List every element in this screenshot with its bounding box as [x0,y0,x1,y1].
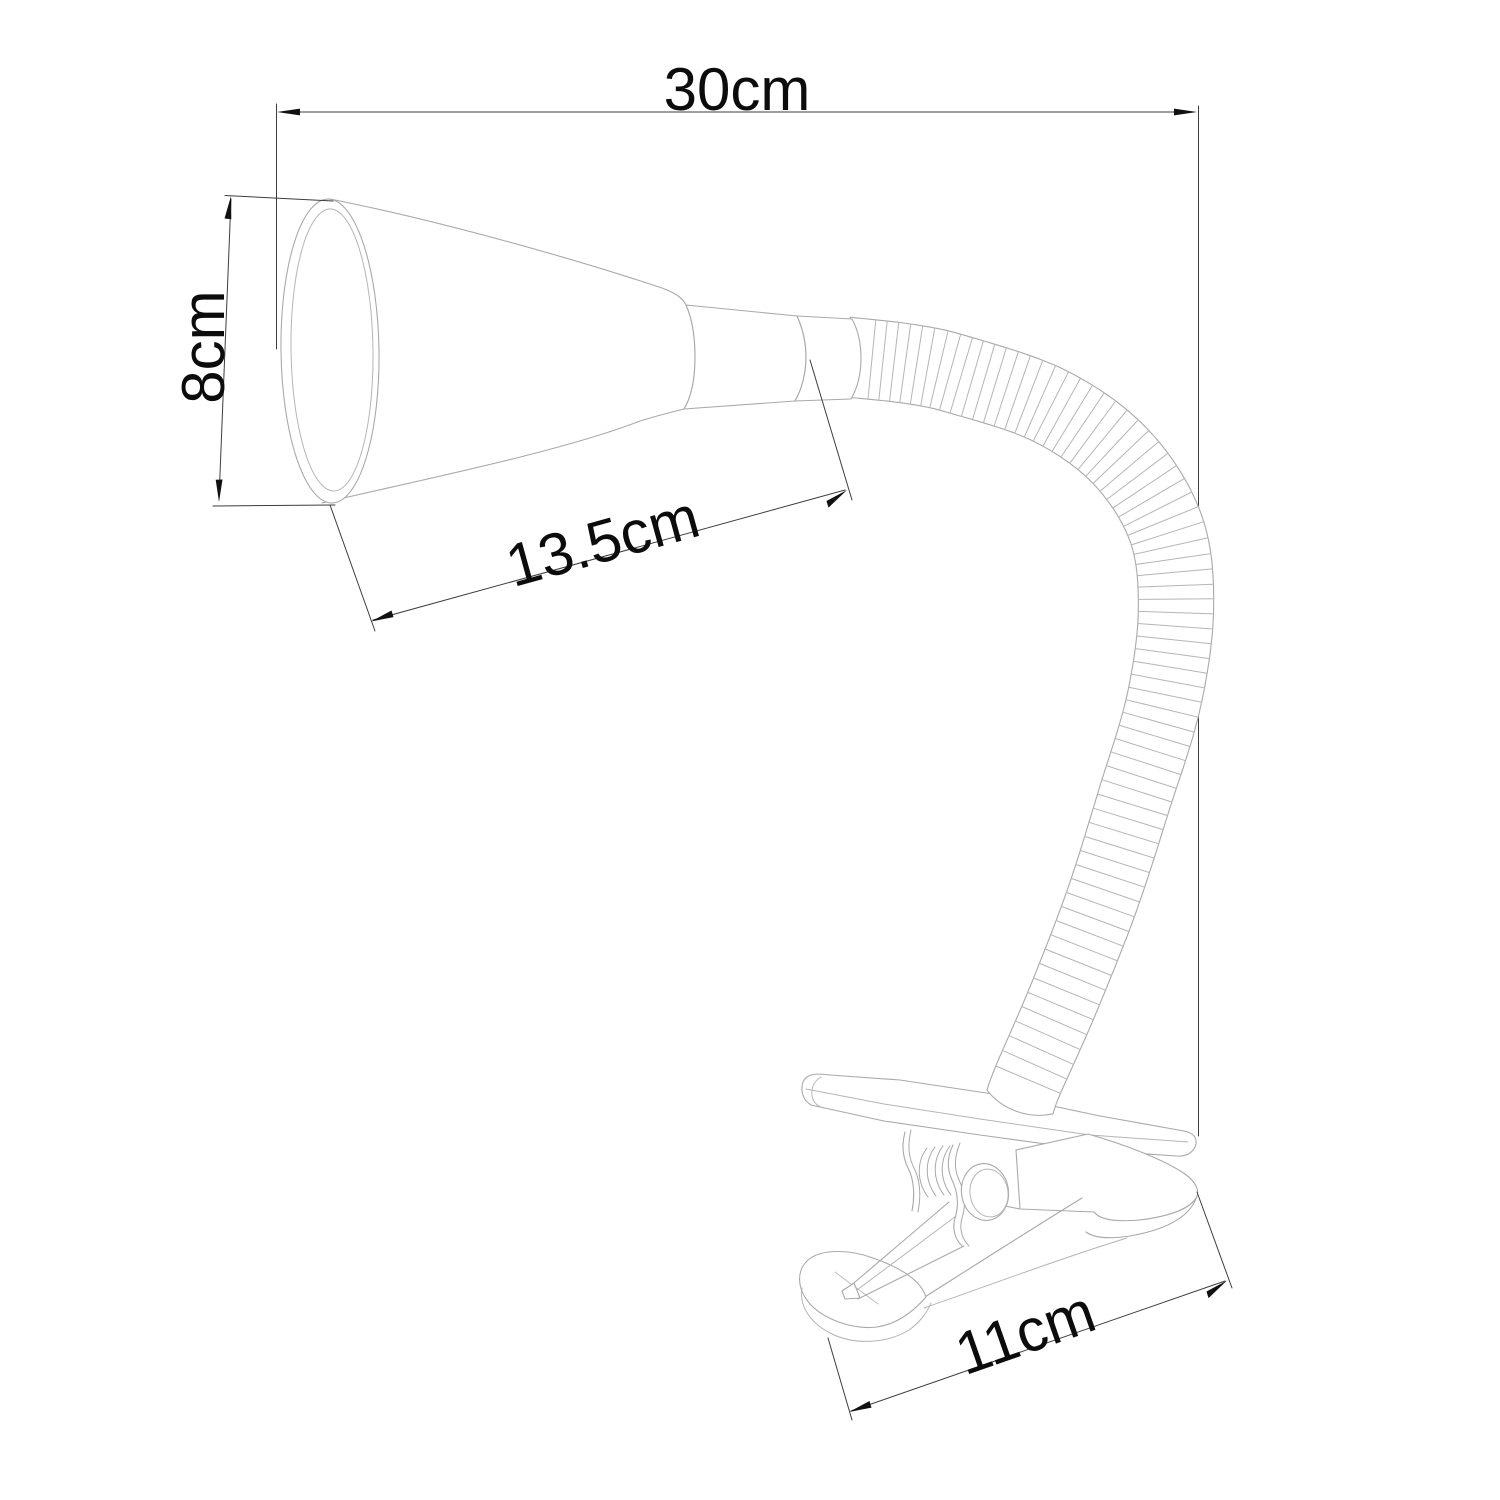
svg-text:30cm: 30cm [664,56,811,123]
svg-text:13.5cm: 13.5cm [499,483,707,600]
svg-text:8cm: 8cm [170,290,237,403]
svg-text:11cm: 11cm [947,1278,1103,1388]
